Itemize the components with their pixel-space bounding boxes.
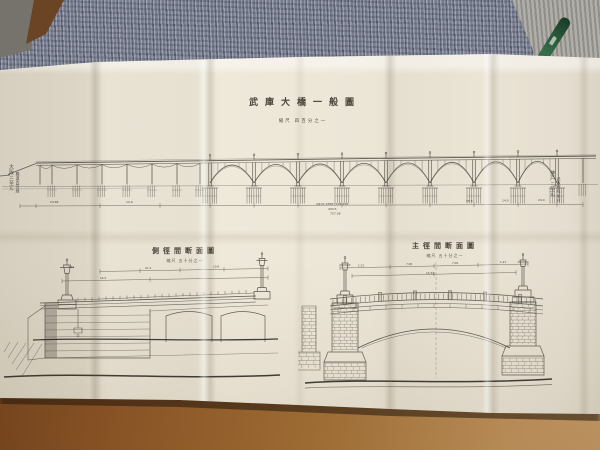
left-route-label: 大阪ニ至ル	[7, 164, 14, 192]
section-left-scale: 縮尺 五十分之一	[138, 258, 232, 264]
right-route-label: 神戸ニ至ル	[548, 170, 555, 198]
right-route-sublabel: 武庫郡鳴尾村	[557, 177, 562, 203]
drawing-title: 武庫大橋一般圖	[222, 95, 388, 108]
drawing-scale: 縮尺 四百分之一	[243, 118, 363, 124]
pen-label	[549, 36, 557, 46]
photo-of-bridge-blueprint: 24.84 14.0 4@31.5565=126.226 430.5 727.3…	[0, 0, 600, 450]
section-right-title: 主徑間断面圖	[378, 241, 512, 251]
section-left-title: 側徑間断面圖	[118, 246, 252, 256]
section-right-scale: 縮尺 五十分之一	[398, 253, 492, 259]
blueprint-paper	[0, 0, 600, 450]
left-route-sublabel: 縣道西宮線	[16, 172, 21, 194]
